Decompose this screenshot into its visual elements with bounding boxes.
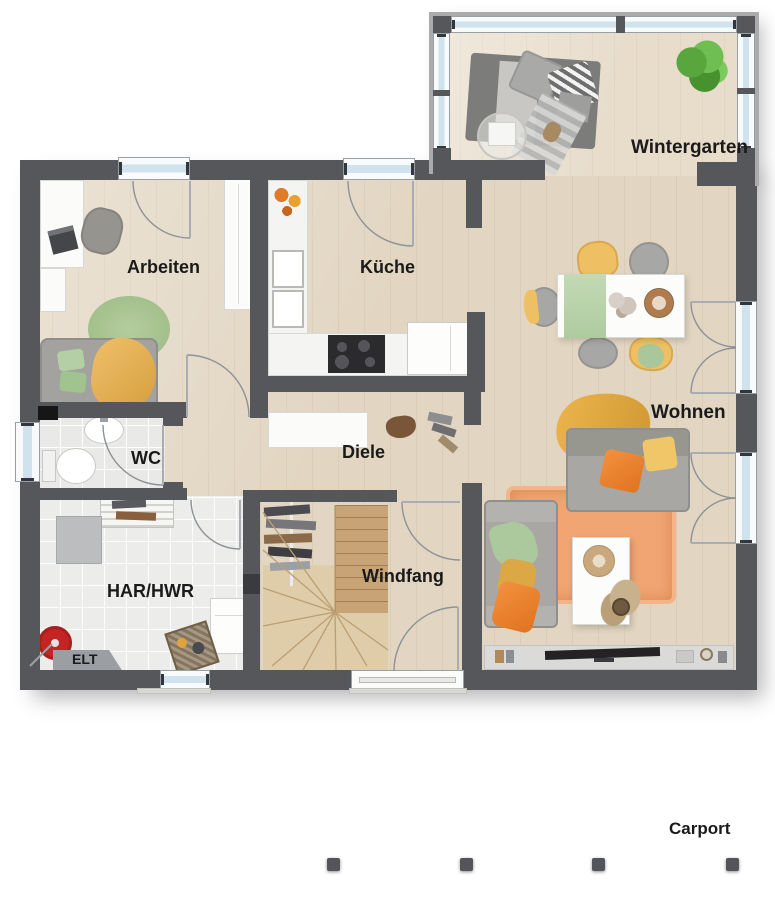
decor-books: [495, 650, 504, 663]
carport-post: [460, 858, 473, 871]
french-door: [735, 452, 757, 544]
tv-stand: [594, 658, 614, 662]
room-label-har-hwr: HAR/HWR: [107, 581, 194, 602]
potted-plant: [676, 40, 728, 96]
table-runner: [564, 274, 606, 338]
green-pillow: [57, 348, 86, 371]
orange-pillow: [598, 448, 645, 493]
laundry-item: [116, 511, 156, 520]
decor-bowl: [700, 648, 713, 661]
corner-post: [433, 148, 451, 162]
kitchen-sink: [272, 250, 304, 288]
wall: [462, 483, 482, 673]
toilet-cistern: [42, 450, 56, 482]
wall: [697, 162, 757, 186]
room-label-wohnen: Wohnen: [651, 402, 726, 424]
green-pillow: [59, 371, 87, 394]
room-label-kueche: Küche: [360, 257, 415, 278]
stair-upper-flight: [335, 505, 388, 613]
mullion-post: [433, 90, 450, 96]
tray: [488, 122, 516, 146]
room-label-elt: ELT: [72, 651, 97, 667]
corner-post: [737, 16, 755, 33]
room-label-wc: WC: [131, 448, 161, 469]
window-sill: [137, 688, 211, 694]
room-label-diele: Diele: [342, 442, 385, 463]
floorplan-canvas: Wintergarten Arbeiten Küche Wohnen WC Di…: [0, 0, 775, 900]
cooktop: [328, 335, 385, 373]
decor-bowl: [644, 288, 674, 318]
decor-books: [676, 650, 694, 663]
corner-post: [433, 16, 451, 33]
window: [118, 157, 190, 180]
decor-books: [718, 651, 727, 663]
flower-decor: [270, 183, 308, 223]
wall: [466, 180, 482, 228]
wall: [736, 162, 757, 690]
plant-pot: [612, 598, 630, 616]
carport-post: [726, 858, 739, 871]
room-label-carport: Carport: [669, 819, 730, 839]
mullion-post: [616, 16, 625, 33]
door-sill: [349, 688, 467, 694]
wall: [163, 418, 183, 426]
chimney: [38, 406, 58, 420]
desk-return: [40, 268, 66, 312]
room-label-windfang: Windfang: [362, 566, 444, 587]
room-label-wintergarten: Wintergarten: [631, 137, 748, 159]
carport-post: [327, 858, 340, 871]
window: [343, 158, 415, 180]
appliance: [56, 516, 102, 564]
decor-books: [506, 650, 514, 663]
refrigerator: [407, 322, 468, 375]
wall: [243, 490, 397, 502]
toilet: [56, 448, 96, 484]
carport-post: [592, 858, 605, 871]
chimney: [243, 574, 260, 594]
french-door: [735, 301, 757, 394]
mullion-post: [737, 88, 755, 94]
dining-chair-gray: [578, 337, 618, 369]
window: [15, 422, 40, 482]
wintergarten-trim: [755, 12, 759, 186]
wall: [250, 376, 485, 392]
round-tray: [583, 545, 615, 577]
wall: [467, 312, 485, 378]
desk: [40, 180, 84, 268]
entrance-door: [351, 670, 464, 689]
room-label-arbeiten: Arbeiten: [127, 257, 200, 278]
table-flowers: [604, 286, 640, 322]
wintergarten-window: [451, 16, 737, 33]
yellow-pillow: [642, 436, 678, 472]
wall: [20, 160, 545, 180]
wardrobe-cabinet: [224, 178, 252, 310]
window: [160, 670, 210, 689]
kitchen-sink: [272, 290, 304, 328]
wall: [20, 488, 187, 500]
coat: [264, 533, 312, 544]
